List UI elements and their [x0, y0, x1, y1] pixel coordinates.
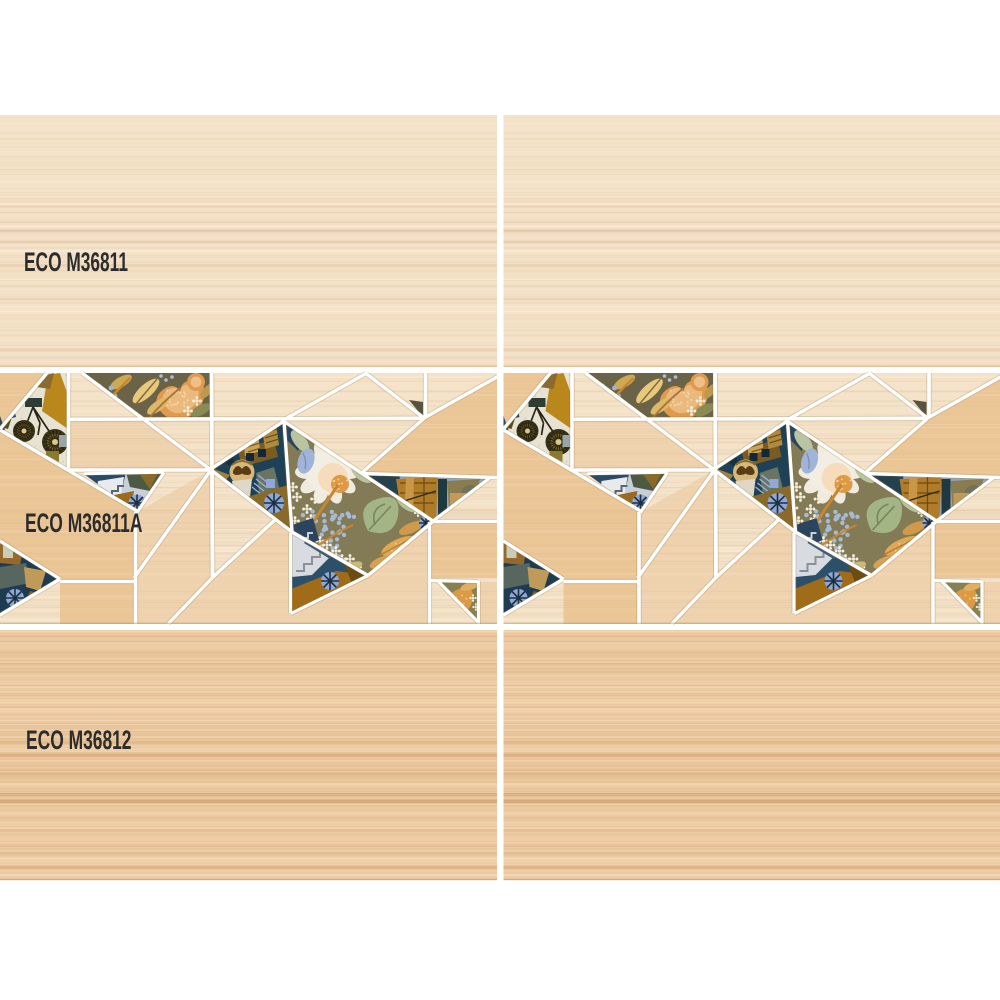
svg-text:ECO M36811A: ECO M36811A [25, 508, 143, 538]
svg-text:ECO M36811: ECO M36811 [24, 247, 128, 277]
svg-text:ECO M36812: ECO M36812 [26, 725, 132, 755]
